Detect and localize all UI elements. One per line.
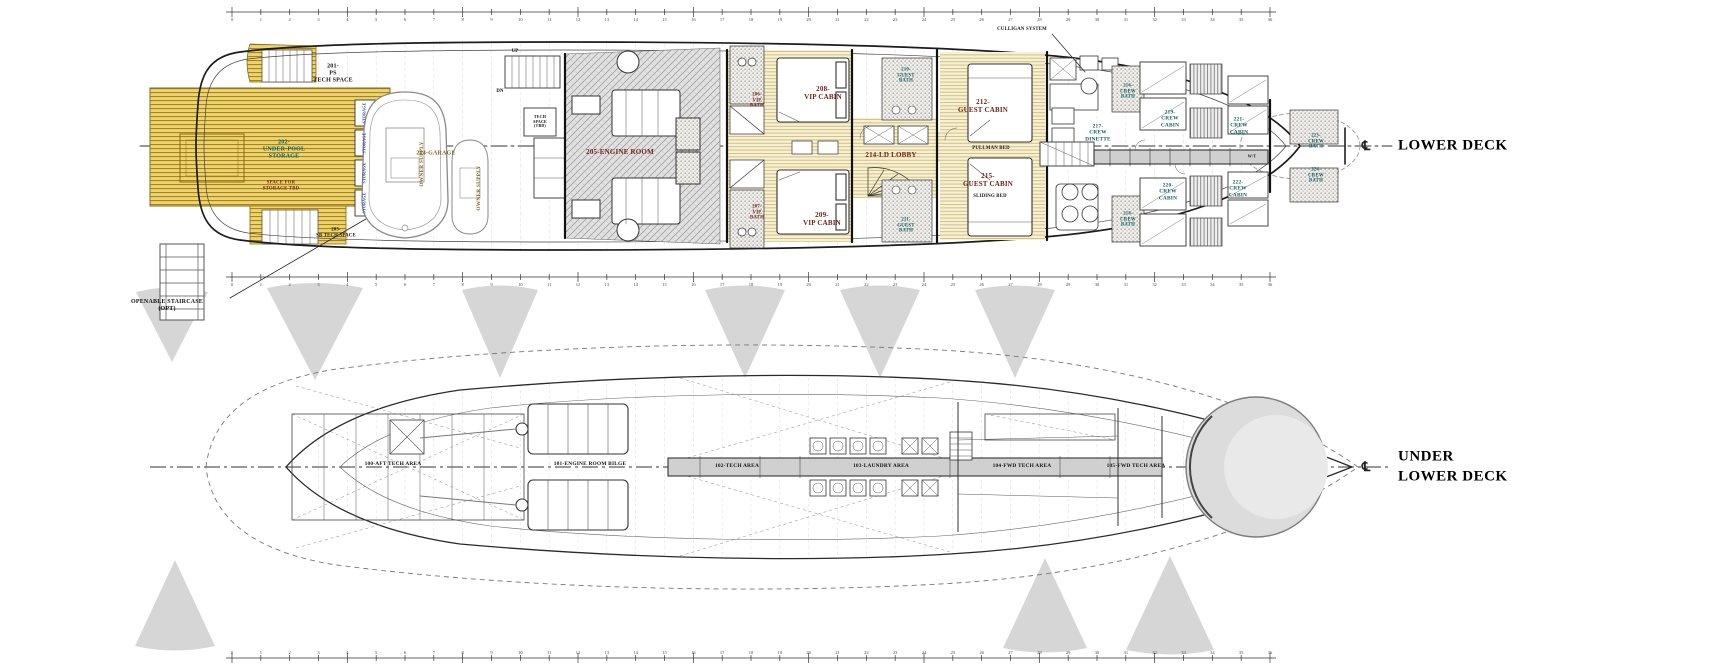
svg-text:35: 35 bbox=[1239, 282, 1244, 287]
svg-text:5: 5 bbox=[375, 650, 378, 655]
svg-text:31: 31 bbox=[1124, 282, 1129, 287]
svg-text:33: 33 bbox=[1181, 650, 1186, 655]
svg-text:16: 16 bbox=[691, 17, 696, 22]
svg-text:12: 12 bbox=[576, 282, 581, 287]
svg-text:27: 27 bbox=[1008, 650, 1013, 655]
svg-text:5: 5 bbox=[375, 17, 378, 22]
svg-text:11: 11 bbox=[547, 282, 551, 287]
svg-text:7: 7 bbox=[433, 17, 436, 22]
svg-text:34: 34 bbox=[1210, 17, 1215, 22]
svg-text:18: 18 bbox=[749, 282, 754, 287]
svg-text:27: 27 bbox=[1008, 282, 1013, 287]
svg-text:35: 35 bbox=[1239, 17, 1244, 22]
svg-text:13: 13 bbox=[605, 17, 610, 22]
svg-text:36: 36 bbox=[1268, 17, 1273, 22]
svg-text:30: 30 bbox=[1095, 650, 1100, 655]
svg-text:1: 1 bbox=[260, 650, 262, 655]
svg-text:17: 17 bbox=[720, 282, 725, 287]
svg-text:32: 32 bbox=[1152, 17, 1157, 22]
svg-text:30: 30 bbox=[1095, 282, 1100, 287]
svg-text:4: 4 bbox=[346, 650, 349, 655]
svg-text:27: 27 bbox=[1008, 17, 1013, 22]
svg-text:3: 3 bbox=[317, 650, 320, 655]
svg-text:3: 3 bbox=[317, 17, 320, 22]
svg-text:19: 19 bbox=[778, 650, 783, 655]
svg-text:0: 0 bbox=[231, 17, 234, 22]
svg-text:31: 31 bbox=[1124, 17, 1129, 22]
svg-text:28: 28 bbox=[1037, 282, 1042, 287]
svg-text:9: 9 bbox=[490, 650, 493, 655]
svg-text:29: 29 bbox=[1066, 282, 1071, 287]
centerline-symbol-lower: ℄ bbox=[1362, 459, 1370, 475]
svg-text:16: 16 bbox=[691, 650, 696, 655]
svg-text:18: 18 bbox=[749, 650, 754, 655]
svg-text:20: 20 bbox=[806, 650, 811, 655]
svg-text:21: 21 bbox=[835, 282, 840, 287]
svg-text:6: 6 bbox=[404, 17, 407, 22]
svg-text:29: 29 bbox=[1066, 17, 1071, 22]
svg-text:4: 4 bbox=[346, 17, 349, 22]
svg-text:8: 8 bbox=[462, 282, 465, 287]
svg-text:26: 26 bbox=[979, 17, 984, 22]
svg-text:9: 9 bbox=[490, 17, 493, 22]
svg-text:11: 11 bbox=[547, 17, 551, 22]
svg-text:26: 26 bbox=[979, 650, 984, 655]
svg-text:23: 23 bbox=[893, 650, 898, 655]
svg-text:16: 16 bbox=[691, 282, 696, 287]
svg-text:24: 24 bbox=[922, 17, 927, 22]
svg-text:23: 23 bbox=[893, 282, 898, 287]
svg-text:7: 7 bbox=[433, 650, 436, 655]
svg-text:10: 10 bbox=[518, 282, 523, 287]
svg-text:0: 0 bbox=[231, 282, 234, 287]
svg-text:2: 2 bbox=[289, 650, 291, 655]
svg-text:36: 36 bbox=[1268, 650, 1273, 655]
centerline-symbol-upper: ℄ bbox=[1362, 138, 1370, 154]
svg-text:14: 14 bbox=[633, 650, 638, 655]
svg-text:31: 31 bbox=[1124, 650, 1129, 655]
svg-text:19: 19 bbox=[778, 282, 783, 287]
svg-text:6: 6 bbox=[404, 650, 407, 655]
svg-text:14: 14 bbox=[633, 282, 638, 287]
svg-text:15: 15 bbox=[662, 282, 667, 287]
svg-text:22: 22 bbox=[864, 282, 869, 287]
svg-text:32: 32 bbox=[1152, 650, 1157, 655]
svg-text:21: 21 bbox=[835, 650, 840, 655]
deck-title-lower-deck: LOWER DECK bbox=[1398, 136, 1508, 156]
svg-text:22: 22 bbox=[864, 650, 869, 655]
svg-text:12: 12 bbox=[576, 17, 581, 22]
svg-text:0: 0 bbox=[231, 650, 234, 655]
svg-text:35: 35 bbox=[1239, 650, 1244, 655]
svg-text:29: 29 bbox=[1066, 650, 1071, 655]
svg-text:36: 36 bbox=[1268, 282, 1273, 287]
under-lower-deck-plan bbox=[150, 345, 1392, 589]
svg-text:8: 8 bbox=[462, 650, 465, 655]
svg-text:34: 34 bbox=[1210, 282, 1215, 287]
svg-text:11: 11 bbox=[547, 650, 551, 655]
svg-text:33: 33 bbox=[1181, 282, 1186, 287]
svg-text:13: 13 bbox=[605, 650, 610, 655]
svg-text:13: 13 bbox=[605, 282, 610, 287]
deck-plan-sheet: 0123456789101112131415161718192021222324… bbox=[0, 0, 1710, 670]
deck-title-under-lower-deck: UNDER LOWER DECK bbox=[1398, 448, 1508, 487]
svg-text:32: 32 bbox=[1152, 282, 1157, 287]
svg-text:15: 15 bbox=[662, 650, 667, 655]
frame-ruler-top: 0123456789101112131415161718192021222324… bbox=[226, 7, 1276, 22]
svg-text:34: 34 bbox=[1210, 650, 1215, 655]
svg-text:6: 6 bbox=[404, 282, 407, 287]
svg-text:25: 25 bbox=[951, 650, 956, 655]
svg-text:24: 24 bbox=[922, 282, 927, 287]
svg-text:17: 17 bbox=[720, 17, 725, 22]
svg-text:21: 21 bbox=[835, 17, 840, 22]
svg-text:18: 18 bbox=[749, 17, 754, 22]
svg-text:28: 28 bbox=[1037, 17, 1042, 22]
svg-text:7: 7 bbox=[433, 282, 436, 287]
frame-ruler-bottom: 0123456789101112131415161718192021222324… bbox=[226, 650, 1276, 663]
svg-text:10: 10 bbox=[518, 17, 523, 22]
svg-text:22: 22 bbox=[864, 17, 869, 22]
svg-text:12: 12 bbox=[576, 650, 581, 655]
svg-text:8: 8 bbox=[462, 17, 465, 22]
svg-text:23: 23 bbox=[893, 17, 898, 22]
svg-text:14: 14 bbox=[633, 17, 638, 22]
svg-text:15: 15 bbox=[662, 17, 667, 22]
svg-text:25: 25 bbox=[951, 282, 956, 287]
svg-text:20: 20 bbox=[806, 17, 811, 22]
svg-text:19: 19 bbox=[778, 17, 783, 22]
svg-text:20: 20 bbox=[806, 282, 811, 287]
svg-text:24: 24 bbox=[922, 650, 927, 655]
svg-text:2: 2 bbox=[289, 282, 291, 287]
svg-text:25: 25 bbox=[951, 17, 956, 22]
svg-text:30: 30 bbox=[1095, 17, 1100, 22]
svg-text:5: 5 bbox=[375, 282, 378, 287]
svg-text:2: 2 bbox=[289, 17, 291, 22]
svg-text:26: 26 bbox=[979, 282, 984, 287]
deck-plan-drawing: 0123456789101112131415161718192021222324… bbox=[0, 0, 1710, 670]
svg-text:10: 10 bbox=[518, 650, 523, 655]
svg-text:28: 28 bbox=[1037, 650, 1042, 655]
frame-ruler-middle: 0123456789101112131415161718192021222324… bbox=[226, 272, 1276, 287]
svg-text:17: 17 bbox=[720, 650, 725, 655]
svg-text:1: 1 bbox=[260, 282, 262, 287]
svg-text:1: 1 bbox=[260, 17, 262, 22]
svg-text:33: 33 bbox=[1181, 17, 1186, 22]
